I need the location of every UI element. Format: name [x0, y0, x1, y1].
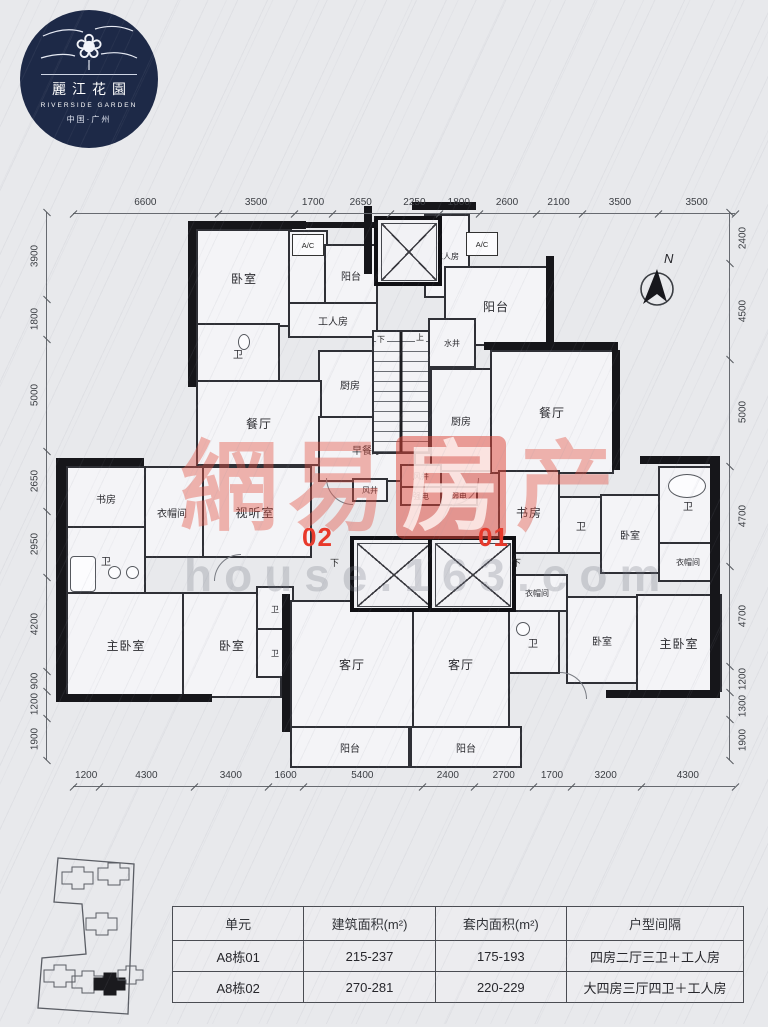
- room-kitchen-right: 厨房: [430, 368, 492, 472]
- room-study-left: 书房: [66, 466, 146, 530]
- wall-segment: [710, 458, 720, 696]
- room-air-shaft-2: 风井: [400, 464, 442, 488]
- dimension-tick: [265, 783, 273, 791]
- room-air-shaft-1: 风井: [352, 478, 388, 502]
- room-label: 工人房: [318, 313, 348, 328]
- hall-down-label-left: 下: [330, 556, 339, 569]
- room-bath-top-left: 卫: [196, 323, 280, 384]
- room-label: 厨房: [451, 413, 471, 428]
- unit-number-02: 02: [302, 522, 333, 553]
- logo-name-chinese: 麗江花園: [52, 79, 132, 99]
- wall-segment: [56, 584, 66, 702]
- dimension-label: 2400: [738, 226, 749, 248]
- dimension-tick: [43, 336, 51, 344]
- dimension-label: 4500: [738, 300, 749, 322]
- dimension-label: 1800: [30, 308, 41, 330]
- col-header-net-area: 套内面积(m²): [435, 907, 566, 941]
- stairs-down-label: 下: [376, 334, 387, 345]
- dimension-tick: [726, 688, 734, 696]
- room-label: 衣帽间: [525, 588, 549, 599]
- table-header-row: 单元 建筑面积(m²) 套内面积(m²) 户型间隔: [173, 907, 744, 941]
- room-label: 厨房: [340, 377, 360, 392]
- room-label: 书房: [96, 491, 116, 506]
- wall-segment: [188, 221, 306, 229]
- dimension-tick: [637, 783, 645, 791]
- cell-gross-area: 270-281: [304, 972, 435, 1003]
- wall-segment: [188, 221, 196, 387]
- unit-number-01: 01: [478, 522, 509, 553]
- room-bedroom-top-left: 卧室: [196, 229, 292, 327]
- wall-segment: [364, 206, 372, 274]
- logo-name-english: RIVERSIDE GARDEN: [41, 102, 138, 109]
- room-dining-left: 餐厅: [196, 380, 322, 466]
- stairwell: 下 上: [372, 330, 430, 454]
- dimension-tick: [43, 687, 51, 695]
- fixture-toilet: [238, 334, 250, 350]
- dimension-label: 4700: [738, 505, 749, 527]
- dimension-label: 1200: [738, 668, 749, 690]
- dimension-tick: [418, 783, 426, 791]
- dimension-label: 2250: [403, 197, 425, 208]
- dimension-tick: [43, 507, 51, 515]
- table-row: A8栋02 270-281 220-229 大四房三厅四卫＋工人房: [173, 972, 744, 1003]
- dimension-tick: [43, 296, 51, 304]
- dimension-label: 5000: [30, 384, 41, 406]
- room-label: 客厅: [339, 656, 365, 673]
- dimension-tick: [532, 210, 540, 218]
- ac-label: A/C: [476, 240, 489, 249]
- cell-layout: 大四房三厅四卫＋工人房: [566, 972, 743, 1003]
- wall-segment: [606, 690, 720, 698]
- dimension-label: 1300: [738, 695, 749, 717]
- dimension-tick: [726, 260, 734, 268]
- dimension-tick: [567, 783, 575, 791]
- unit-spec-table: 单元 建筑面积(m²) 套内面积(m²) 户型间隔 A8栋01 215-237 …: [172, 906, 744, 1003]
- dimension-label: 1200: [75, 770, 97, 781]
- dimension-label: 1900: [30, 728, 41, 750]
- room-label: 主卧室: [659, 635, 698, 652]
- dimension-tick: [475, 210, 483, 218]
- wall-segment: [56, 458, 144, 466]
- dimension-label: 1900: [738, 729, 749, 751]
- room-label: 衣帽间: [157, 505, 187, 520]
- dimension-label: 900: [30, 672, 41, 689]
- room-label: 书房: [516, 504, 542, 521]
- dimension-tick: [43, 209, 51, 217]
- dimension-label: 3500: [686, 197, 708, 208]
- wall-segment: [56, 458, 66, 584]
- dimension-label: 1800: [448, 197, 470, 208]
- dimension-label: 1200: [30, 693, 41, 715]
- room-living-left: 客厅: [290, 600, 414, 728]
- col-header-layout: 户型间隔: [566, 907, 743, 941]
- room-dining-right: 餐厅: [490, 350, 614, 474]
- logo-region: 中国·广州: [67, 114, 112, 125]
- room-label: 阳台: [456, 740, 476, 755]
- dimension-label: 3900: [30, 244, 41, 266]
- dimension-label: 4300: [677, 770, 699, 781]
- dimension-tick: [328, 210, 336, 218]
- room-label: 卧室: [592, 633, 612, 648]
- cell-unit: A8栋02: [173, 972, 304, 1003]
- dimension-label: 3200: [595, 770, 617, 781]
- dimension-tick: [43, 757, 51, 765]
- bottom-dimensions: 1200430034001600540024002700170032004300: [73, 786, 735, 787]
- dimension-tick: [530, 783, 538, 791]
- fixture-basin: [516, 622, 530, 636]
- wall-segment: [640, 456, 720, 464]
- site-plan-sketch: [28, 852, 154, 1027]
- table-row: A8栋01 215-237 175-193 四房二厅三卫＋工人房: [173, 941, 744, 972]
- room-label: 餐厅: [246, 415, 272, 432]
- top-dimensions: 6600350017002650225018002600210035003500: [73, 213, 735, 214]
- dimension-tick: [291, 210, 299, 218]
- room-label: 强电: [413, 491, 429, 502]
- dimension-label: 1700: [302, 197, 324, 208]
- dimension-label: 3400: [220, 770, 242, 781]
- room-label: 水井: [444, 338, 460, 349]
- riverside-garden-logo: ❀ 麗江花園 RIVERSIDE GARDEN 中国·广州: [20, 10, 158, 148]
- dimension-label: 1700: [541, 770, 563, 781]
- room-bedroom-right-2: 卧室: [566, 596, 638, 684]
- dimension-label: 6600: [134, 197, 156, 208]
- cell-unit: A8栋01: [173, 941, 304, 972]
- col-header-gross-area: 建筑面积(m²): [304, 907, 435, 941]
- dimension-tick: [190, 783, 198, 791]
- room-label: 客厅: [448, 656, 474, 673]
- room-label: 卫: [576, 518, 586, 533]
- fixture-bathtub: [668, 474, 706, 498]
- room-cloak-right-1: 衣帽间: [658, 542, 718, 582]
- col-header-unit: 单元: [173, 907, 304, 941]
- dimension-label: 2400: [437, 770, 459, 781]
- cell-gross-area: 215-237: [304, 941, 435, 972]
- dimension-tick: [578, 210, 586, 218]
- fixture-bathtub: [70, 556, 96, 592]
- dimension-tick: [726, 462, 734, 470]
- room-label: 卫: [528, 635, 538, 650]
- cell-net-area: 220-229: [435, 972, 566, 1003]
- hall-down-label-right: 下: [512, 556, 521, 569]
- fixture-basin: [126, 566, 139, 579]
- dimension-label: 5000: [738, 401, 749, 423]
- dimension-label: 3500: [609, 197, 631, 208]
- room-balcony-bottom-left: 阳台: [290, 726, 410, 768]
- dimension-tick: [726, 563, 734, 571]
- room-master-left: 主卧室: [66, 592, 186, 698]
- dimension-tick: [70, 210, 78, 218]
- room-strong-electric: 强电: [400, 486, 442, 506]
- dimension-label: 2700: [493, 770, 515, 781]
- ac-label: A/C: [302, 241, 315, 250]
- cell-layout: 四房二厅三卫＋工人房: [566, 941, 743, 972]
- room-worker-left: 工人房: [288, 302, 378, 338]
- room-bath-right-3: 卫: [506, 610, 560, 674]
- dimension-label: 2650: [30, 470, 41, 492]
- ac-unit-left: A/C: [292, 234, 324, 256]
- logo-divider: [41, 74, 137, 75]
- dimension-label: 3500: [245, 197, 267, 208]
- dimension-tick: [43, 667, 51, 675]
- elevator-x-icon: [381, 223, 437, 281]
- logo-flower-icon: ❀: [37, 20, 141, 72]
- dimension-label: 4700: [738, 605, 749, 627]
- room-label: 卫: [101, 553, 111, 568]
- room-label: 卫: [271, 604, 279, 615]
- dimension-tick: [726, 757, 734, 765]
- dimension-label: 2100: [547, 197, 569, 208]
- dimension-tick: [726, 663, 734, 671]
- dimension-tick: [43, 448, 51, 456]
- wall-segment: [612, 350, 620, 470]
- room-label: 阳台: [340, 740, 360, 755]
- door-arc: [214, 554, 241, 581]
- dimension-label: 4200: [30, 612, 41, 634]
- stairs-up-label: 上: [415, 332, 426, 343]
- room-label: 餐厅: [539, 404, 565, 421]
- room-label: 卫: [683, 498, 693, 513]
- room-label: 衣帽间: [676, 557, 700, 568]
- room-bedroom-right-1: 卧室: [600, 494, 660, 574]
- room-label: 卧室: [219, 637, 245, 654]
- dimension-label: 2950: [30, 532, 41, 554]
- elevator-x-icon: [357, 543, 431, 607]
- right-dimensions: 24004500500047004700120013001900: [729, 212, 730, 760]
- room-balcony-bottom-right: 阳台: [410, 726, 522, 768]
- room-label: 视听室: [235, 504, 274, 521]
- room-label: 主卧室: [106, 637, 145, 654]
- dimension-tick: [471, 783, 479, 791]
- room-water-well: 水井: [428, 318, 476, 368]
- wall-segment: [282, 594, 290, 732]
- dimension-label: 2600: [496, 197, 518, 208]
- dimension-tick: [300, 783, 308, 791]
- door-arc: [326, 478, 353, 505]
- dimension-tick: [655, 210, 663, 218]
- room-cloak-left: 衣帽间: [140, 466, 204, 558]
- dimension-label: 1600: [275, 770, 297, 781]
- dimension-tick: [96, 783, 104, 791]
- elevator-bottom-left: [350, 536, 436, 612]
- room-label: 风井: [362, 485, 378, 496]
- room-label: 阳台: [483, 298, 509, 315]
- cell-net-area: 175-193: [435, 941, 566, 972]
- wall-segment: [484, 342, 618, 350]
- room-label: 风井: [413, 471, 429, 482]
- dimension-tick: [732, 783, 740, 791]
- room-label: 卫: [271, 648, 279, 659]
- north-label: N: [664, 251, 674, 266]
- dimension-tick: [726, 356, 734, 364]
- room-label: 卧室: [231, 270, 257, 287]
- room-bath-right-1: 卫: [558, 496, 604, 554]
- room-media: 视听室: [198, 466, 312, 558]
- room-label: 卧室: [620, 527, 640, 542]
- wall-segment: [56, 694, 212, 702]
- dimension-label: 2650: [350, 197, 372, 208]
- fixture-basin: [108, 566, 121, 579]
- elevator-top: [374, 216, 442, 286]
- dimension-label: 4300: [135, 770, 157, 781]
- dimension-tick: [214, 210, 222, 218]
- left-dimensions: 39001800500026502950420090012001900: [46, 212, 47, 760]
- dimension-tick: [726, 716, 734, 724]
- room-label: 阳台: [341, 268, 361, 283]
- dimension-tick: [70, 783, 78, 791]
- north-arrow: N: [628, 250, 690, 319]
- ac-unit-right: A/C: [466, 232, 498, 256]
- dimension-tick: [43, 714, 51, 722]
- dimension-label: 5400: [351, 770, 373, 781]
- dimension-tick: [43, 573, 51, 581]
- room-living-right: 客厅: [412, 600, 510, 728]
- wall-segment: [546, 256, 554, 348]
